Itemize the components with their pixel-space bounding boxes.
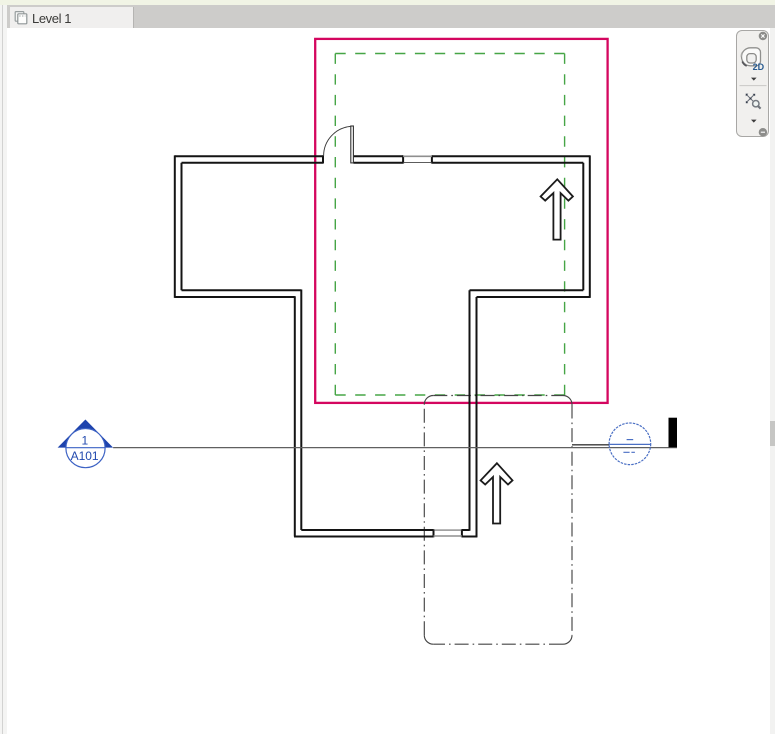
- svg-text:A101: A101: [71, 449, 99, 463]
- svg-text:1: 1: [82, 434, 89, 448]
- svg-text:2D: 2D: [753, 62, 765, 72]
